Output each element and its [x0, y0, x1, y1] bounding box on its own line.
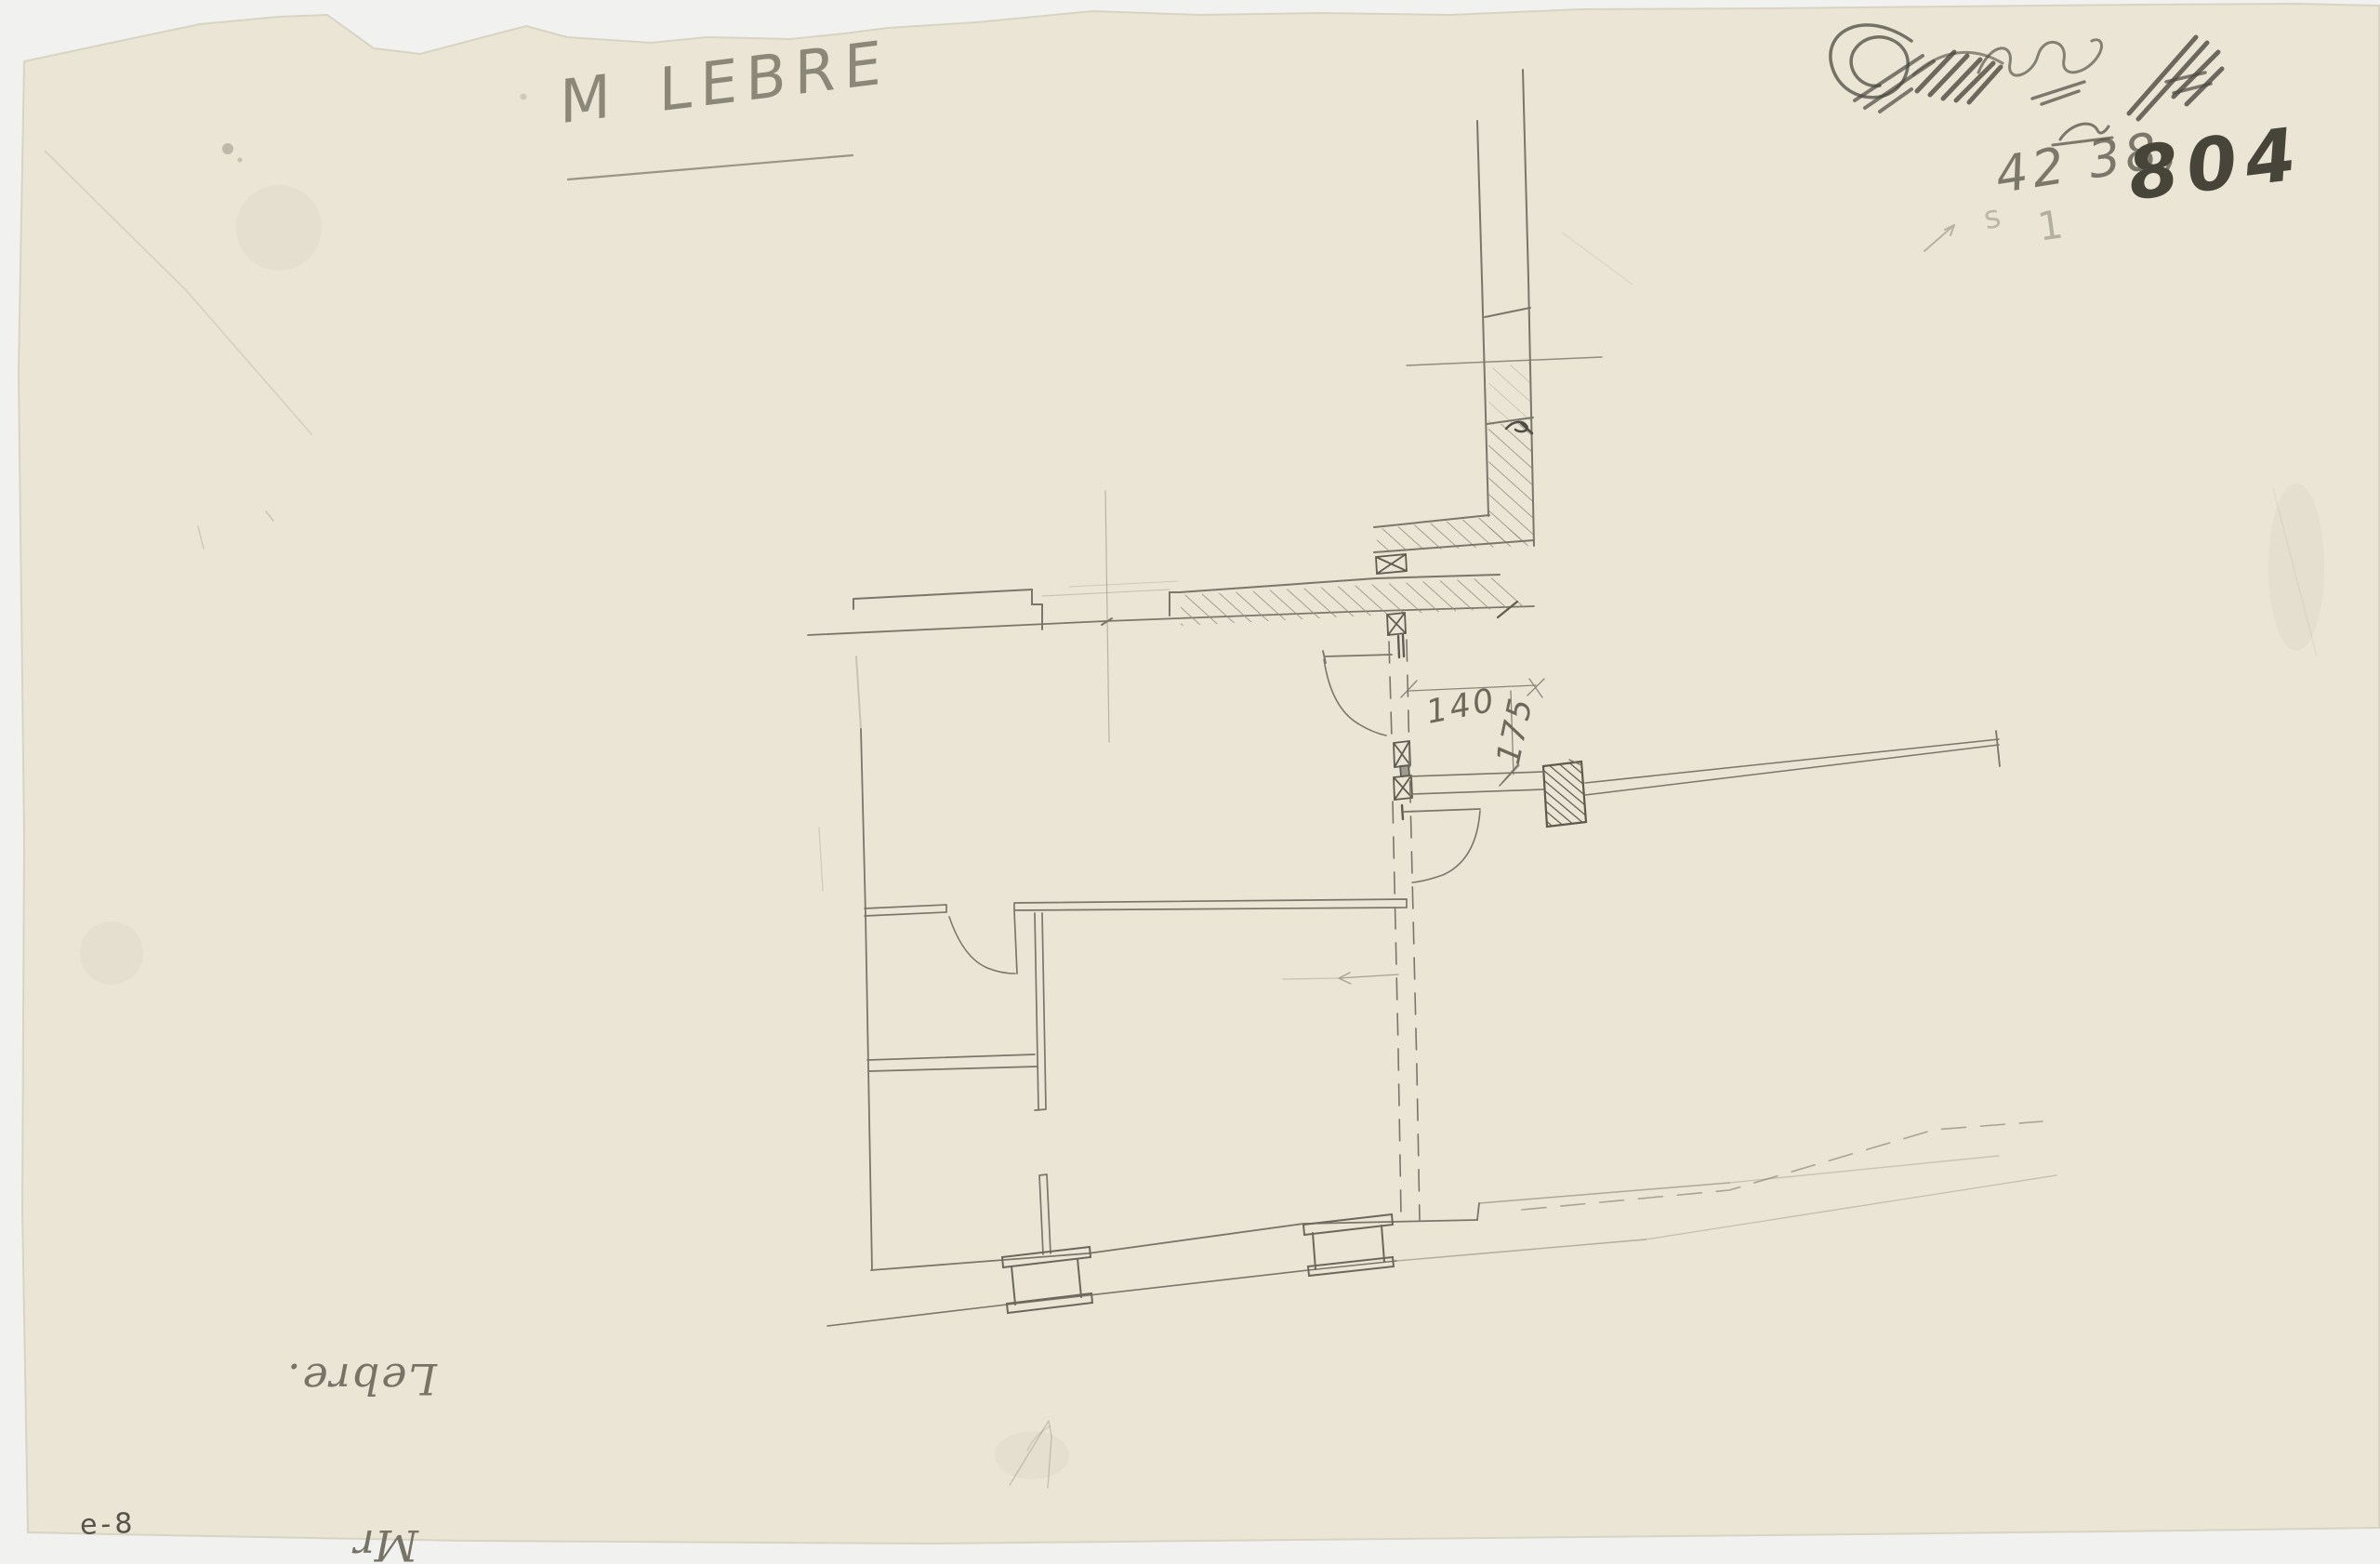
- verso-line-2: Mr: [165, 1517, 418, 1564]
- corner-mark: e-8: [79, 1507, 137, 1542]
- verso-line-3: Lebre.: [165, 1350, 437, 1406]
- verso-note: pour Mr Lebre.: [165, 1239, 461, 1564]
- pillar: [1543, 762, 1586, 827]
- ink-spot: [222, 143, 233, 154]
- scanned-plan-sheet: M LEBRE 42 38, 804 s 1 pour Mr Lebre. 14…: [0, 0, 2380, 1564]
